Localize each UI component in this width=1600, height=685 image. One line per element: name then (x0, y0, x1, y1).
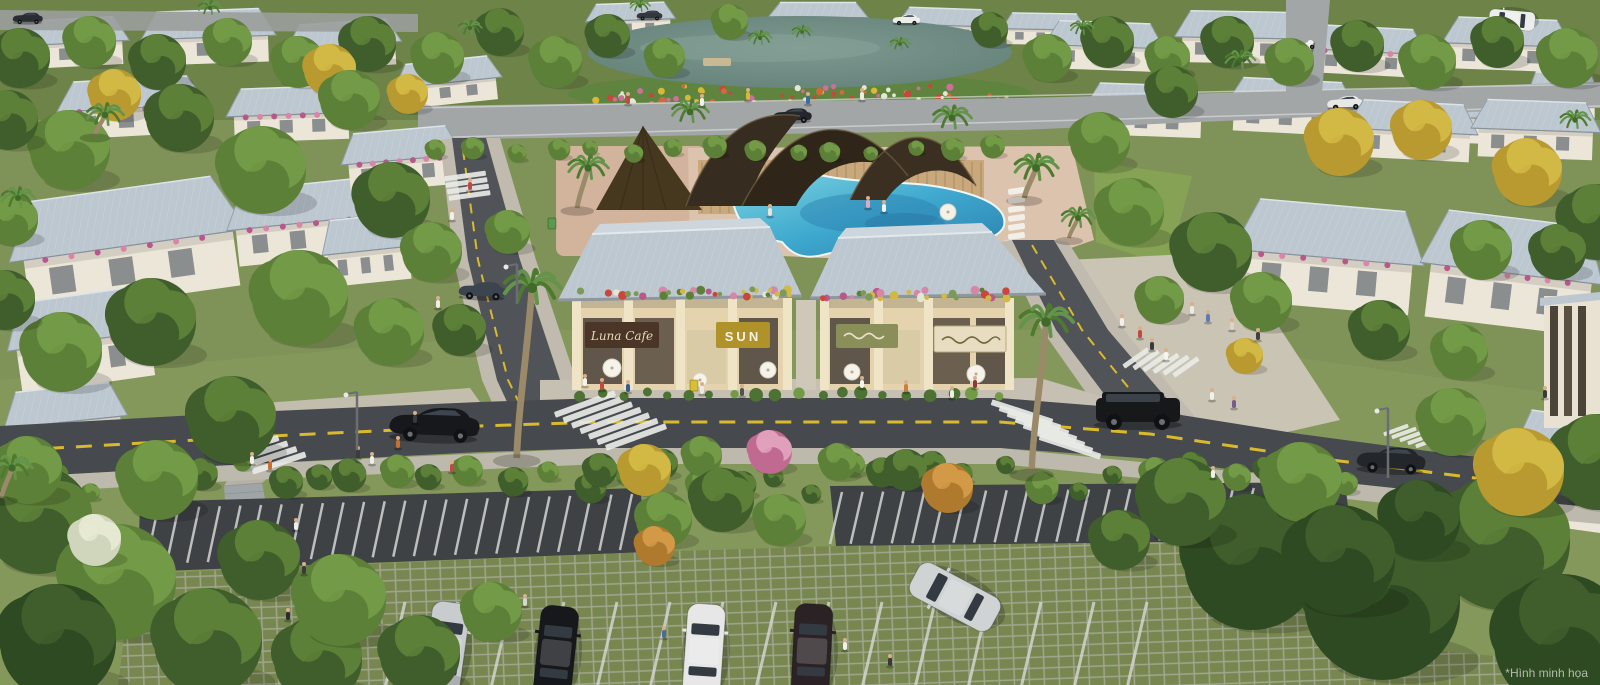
flower (698, 87, 704, 93)
rooftop-flower (749, 286, 755, 292)
planter-bush (878, 391, 886, 399)
flower (780, 94, 783, 97)
right-edge-building (1540, 292, 1600, 428)
sign-luna-cafe-text: Luna Cafe (590, 329, 653, 343)
planter-bush (995, 392, 1003, 400)
rooftop-flower (718, 292, 723, 297)
rooftop-flower (985, 295, 991, 301)
flower (685, 95, 691, 101)
rooftop-flower (917, 293, 924, 300)
flower (729, 92, 732, 95)
lake-dock (703, 58, 731, 66)
pilaster (572, 298, 581, 390)
flower (649, 93, 654, 98)
flower (658, 88, 665, 95)
planter-bush (769, 389, 781, 401)
flower (607, 95, 613, 101)
flower (831, 84, 836, 89)
building-window (1550, 306, 1558, 416)
rooftop-flower (625, 291, 631, 297)
planter-bush (924, 389, 937, 402)
flower (666, 98, 670, 102)
rooftop-flower (941, 293, 947, 299)
planter-bush (819, 391, 828, 400)
rooftop-flower (1003, 294, 1011, 302)
rooftop-flower (766, 292, 771, 297)
center-walkway (796, 300, 816, 390)
rooftop-flower (706, 289, 712, 295)
eave-shadow (820, 298, 1014, 308)
flower (681, 84, 685, 88)
rooftop-flower (730, 292, 737, 299)
flower (831, 92, 836, 97)
pilaster (924, 298, 933, 390)
rooftop-flower (634, 291, 639, 296)
trash-bin (690, 380, 698, 391)
flower (618, 95, 624, 101)
rooftop-flower (686, 291, 694, 299)
flower (637, 88, 643, 94)
rooftop-flower (713, 292, 718, 297)
trash-bin (548, 218, 556, 229)
building-window (1564, 306, 1572, 416)
rooftop-flower (1002, 287, 1010, 295)
scene-svg: Luna Cafe SUN (0, 0, 1600, 685)
building-window (1578, 306, 1586, 416)
planter-bush (749, 388, 763, 402)
planter-bush (705, 391, 713, 399)
pilaster (783, 298, 792, 390)
rooftop-flower (820, 295, 826, 301)
pilaster (820, 298, 829, 390)
planter-bush (837, 387, 848, 398)
pilaster (676, 298, 685, 390)
rooftop-flower (639, 292, 646, 299)
flower (946, 84, 953, 91)
car-parked (786, 603, 840, 685)
flower (673, 96, 679, 102)
flower (795, 85, 801, 91)
rooftop-flower (680, 289, 685, 294)
rooftop-flower (605, 289, 612, 296)
flower (876, 94, 879, 97)
rooftop-flower (861, 290, 867, 296)
flower (943, 91, 948, 96)
planter-bush (730, 390, 738, 398)
rooftop-flower (666, 290, 671, 295)
flower (904, 90, 911, 97)
rooftop-flower (768, 288, 772, 292)
rooftop-flower (954, 295, 959, 300)
rooftop-flower (775, 292, 780, 297)
planter-bush (663, 391, 671, 399)
planter-bush (643, 388, 652, 397)
sign-olive-board (836, 324, 898, 348)
flower (816, 88, 823, 95)
rooftop-flower (577, 288, 584, 295)
sign-sun-text: SUN (725, 329, 761, 344)
planter-bush (574, 391, 585, 402)
rooftop-flower (876, 289, 884, 297)
planter-bush (793, 388, 804, 399)
flower (928, 84, 932, 88)
rooftop-flower (971, 286, 980, 295)
rooftop-flower (840, 292, 848, 300)
flower (613, 97, 617, 101)
watermark: *Hình minh họa (1505, 666, 1588, 680)
rooftop-flower (743, 293, 751, 301)
sign-cream-board (934, 326, 1006, 352)
rooftop-flower (696, 286, 705, 295)
planter-bush (684, 390, 695, 401)
flower (801, 89, 805, 93)
flower (871, 87, 877, 93)
flower (721, 88, 727, 94)
rooftop-flower (921, 287, 928, 294)
flower (790, 95, 793, 98)
flower (886, 88, 891, 93)
rooftop-flower (924, 295, 929, 300)
flower (917, 87, 921, 91)
rooftop-flower (906, 290, 911, 295)
flower (840, 90, 845, 95)
rooftop-flower (787, 293, 792, 298)
flower (592, 97, 599, 104)
rooftop-flower (850, 295, 854, 299)
aerial-render: Luna Cafe SUN (0, 0, 1600, 685)
flower (620, 91, 623, 94)
shophouse-gap-walk (796, 300, 816, 390)
rooftop-flower (780, 289, 787, 296)
flower (823, 85, 829, 91)
rooftop-flower (890, 291, 899, 300)
rooftop-flower (865, 293, 873, 301)
flower (892, 93, 896, 97)
